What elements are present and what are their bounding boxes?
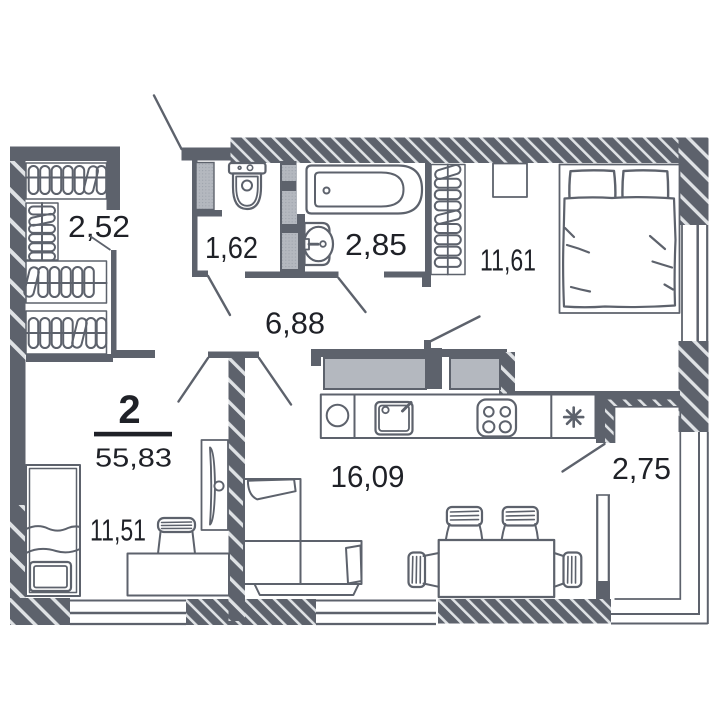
- svg-text:55,83: 55,83: [95, 443, 172, 473]
- svg-text:1,62: 1,62: [205, 230, 258, 265]
- svg-text:2,75: 2,75: [612, 451, 671, 486]
- svg-text:6,88: 6,88: [265, 306, 325, 341]
- svg-text:11,51: 11,51: [90, 513, 146, 548]
- svg-text:2,52: 2,52: [68, 209, 130, 244]
- svg-text:2,85: 2,85: [345, 227, 407, 262]
- svg-text:11,61: 11,61: [480, 243, 536, 278]
- svg-text:2: 2: [118, 388, 140, 432]
- svg-text:16,09: 16,09: [331, 459, 405, 494]
